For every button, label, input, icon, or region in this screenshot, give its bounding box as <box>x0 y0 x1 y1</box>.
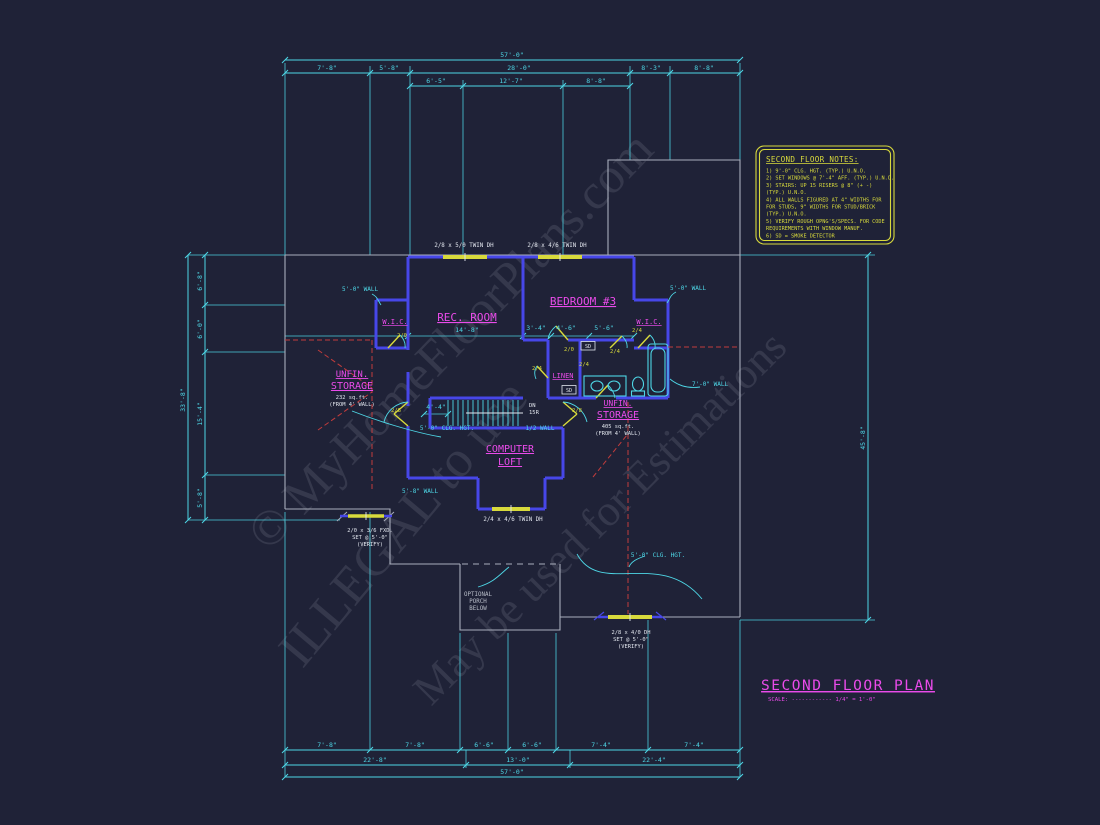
drawing-label: 2/8 x 4/0 DH <box>612 630 651 636</box>
drawing-label: 2/4 <box>632 328 643 334</box>
drawing-label: DN <box>529 403 536 409</box>
bath-fixtures <box>584 344 668 396</box>
drawing-label: 13'-0" <box>506 756 529 764</box>
bathtub-inner <box>651 348 665 392</box>
drawing-label: 5'-0" CLG. HGT. <box>420 425 474 432</box>
drawing-label: STORAGE <box>331 381 373 392</box>
plan-title: SECOND FLOOR PLAN <box>761 678 935 694</box>
drawing-label: 5'-0" CLG. HGT. <box>631 552 685 559</box>
drawing-label: 7'-8" <box>317 741 337 749</box>
sink-left <box>591 381 603 391</box>
drawing-label: 2/4 <box>532 366 543 372</box>
drawing-label: SET @ 5'-0" <box>352 535 388 541</box>
drawing-label: (FROM 4' WALL) <box>329 402 374 408</box>
drawing-label: 2/0 <box>397 333 407 339</box>
drawing-label: 45'-8" <box>859 426 867 449</box>
drawing-label: (FROM 4' WALL) <box>595 431 640 437</box>
scale-label: SCALE: ------------ 1/4" = 1'-0" <box>768 697 876 703</box>
drawing-label: 7'-8" <box>317 64 337 72</box>
room-label-linen: LINEN <box>552 372 573 380</box>
drawing-label: 22'-4" <box>642 756 665 764</box>
note-line: (TYP.) U.N.O. <box>766 190 807 196</box>
room-label-storage-right: UNFIN. <box>604 399 633 408</box>
room-label-computer-loft: COMPUTER <box>486 444 535 455</box>
notes-box: SECOND FLOOR NOTES: 1) 9'-0" CLG. HGT. (… <box>756 146 894 244</box>
drawing-label: 6'-5" <box>426 77 446 85</box>
drawing-label: LOFT <box>498 457 522 468</box>
drawing-label: (VERIFY) <box>357 542 383 548</box>
drawing-label: 2/8 <box>391 408 401 414</box>
notes-heading: SECOND FLOOR NOTES: <box>766 155 859 164</box>
drawing-label: 7'-4" <box>684 741 704 749</box>
drawing-label: 15'-4" <box>196 402 204 425</box>
smoke-detector-label: SD <box>566 388 572 394</box>
drawing-label: 33'-8" <box>179 388 187 411</box>
drawing-label: 5'-0" WALL <box>670 285 707 292</box>
drawing-label: 8'-8" <box>694 64 714 72</box>
drawing-label: BELOW <box>469 606 487 612</box>
drawing-label: 2/8 x 5/0 TWIN DH <box>434 243 494 249</box>
room-label-wic-left: W.I.C. <box>382 318 407 326</box>
room-label-storage-left: UNFIN. <box>336 370 369 380</box>
drawing-label: 5'-8" WALL <box>402 488 439 495</box>
drawing-label: 6'-8" <box>196 271 204 291</box>
drawing-label: 2/4 <box>610 349 621 355</box>
room-label-rec-room: REC. ROOM <box>437 311 497 324</box>
note-line: 5) VERIFY ROUGH OPNG'S/SPECS. FOR CODE <box>766 219 885 225</box>
drawing-label: 2/8 x 4/6 TWIN DH <box>527 243 587 249</box>
notes-lines: 1) 9'-0" CLG. HGT. (TYP.) U.N.O.2) SET W… <box>766 169 894 240</box>
drawing-label: 4'-4" <box>426 403 446 411</box>
room-label-wic-right: W.I.C. <box>636 318 661 326</box>
drawing-label: 5'-8" <box>196 488 204 508</box>
drawing-label: 57'-0" <box>500 51 523 59</box>
drawing-label: 232 sq.ft. <box>336 395 368 401</box>
drawing-label: 7'-0" WALL <box>692 381 729 388</box>
drawing-label: 7'-4" <box>591 741 611 749</box>
blueprint-canvas: © MyHomeFloorPlans.comILLEGAL to useMay … <box>0 0 1100 825</box>
drawing-label: 2/4 x 4/6 TWIN DH <box>483 517 543 523</box>
toilet-tank <box>632 391 645 396</box>
note-line: (TYP.) U.N.O. <box>766 212 807 218</box>
note-line: 6) SD = SMOKE DETECTOR <box>766 233 836 239</box>
drawing-label: SET @ 5'-0" <box>613 637 649 643</box>
drawing-label: 2/0 <box>564 347 574 353</box>
second-floor-plan-drawing: © MyHomeFloorPlans.comILLEGAL to useMay … <box>0 0 1100 825</box>
drawing-label: OPTIONAL <box>464 592 492 598</box>
sink-right <box>608 381 620 391</box>
drawing-label: 5'-8" <box>379 64 399 72</box>
drawing-label: 7'-8" <box>405 741 425 749</box>
drawing-label: 8'-3" <box>641 64 661 72</box>
drawing-label: (VERIFY) <box>618 644 644 650</box>
toilet-bowl <box>633 377 644 391</box>
drawing-label: 6'-0" <box>196 319 204 339</box>
drawing-label: 12'-7" <box>499 77 522 85</box>
drawing-label: PORCH <box>469 599 487 605</box>
dimension-lines <box>185 57 875 780</box>
note-line: FOR STUDS, 9" WIDTHS FOR STUD/BRICK <box>766 205 876 211</box>
drawing-label: 2/4 <box>579 362 590 368</box>
drawing-label: 8'-8" <box>586 77 606 85</box>
drawing-label: 405 sq.ft. <box>602 424 634 430</box>
note-line: 4) ALL WALLS FIGURED AT 4" WIDTHS FOR <box>766 197 882 203</box>
drawing-label: 5'-0" WALL <box>342 286 379 293</box>
drawing-label: 14'-8" <box>455 326 478 334</box>
drawing-label: 4'-6" <box>556 324 576 332</box>
drawing-label: 2/8 <box>572 408 582 414</box>
watermark-text: May be used for Estimations <box>404 322 796 714</box>
drawing-label: 22'-8" <box>363 756 386 764</box>
drawing-label: 5'-6" <box>594 324 614 332</box>
note-line: 3) STAIRS: UP 15 RISERS @ 8" (+ -) <box>766 183 872 189</box>
drawing-label: 57'-0" <box>500 768 523 776</box>
drawing-label: 15R <box>529 410 540 416</box>
drawing-label: STORAGE <box>597 410 639 421</box>
drawing-label: 2/0 x 3/6 FXD. <box>347 528 392 534</box>
room-label-bedroom-3: BEDROOM #3 <box>550 295 616 308</box>
drawing-label: 6'-6" <box>474 741 494 749</box>
note-line: 1) 9'-0" CLG. HGT. (TYP.) U.N.O. <box>766 169 866 175</box>
smoke-detector-label: SD <box>585 344 591 350</box>
watermark-layer: © MyHomeFloorPlans.comILLEGAL to useMay … <box>236 120 796 714</box>
drawing-label: 1/2 WALL <box>526 425 555 432</box>
drawing-label: 3'-4" <box>526 324 546 332</box>
note-line: REQUIREMENTS WITH WINDOW MANUF. <box>766 226 863 232</box>
drawing-label: 6'-6" <box>522 741 542 749</box>
note-line: 2) SET WINDOWS @ 7'-4" AFF. (TYP.) U.N.O… <box>766 176 894 182</box>
drawing-label: 28'-0" <box>507 64 530 72</box>
